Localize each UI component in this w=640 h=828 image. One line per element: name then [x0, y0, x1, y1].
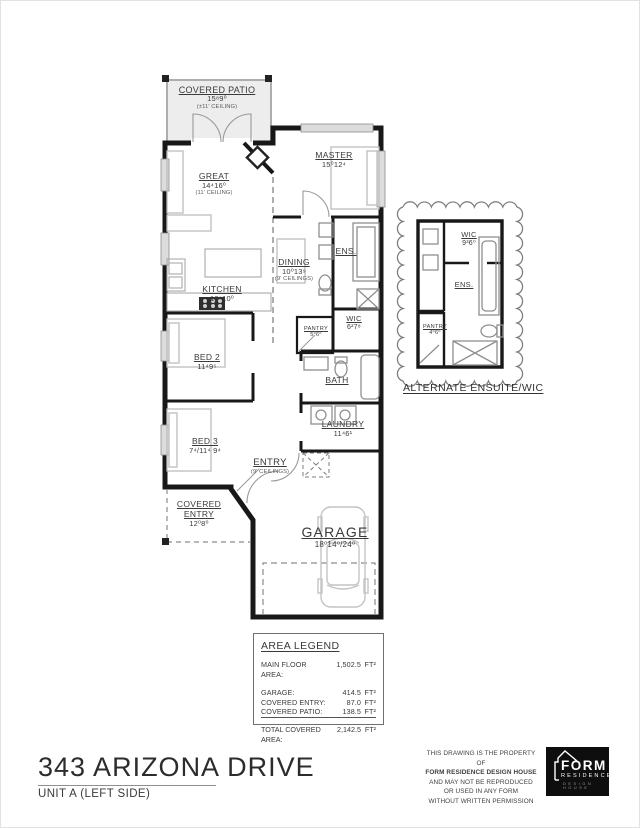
- legend-row-covered-patio: COVERED PATIO: 138.5 FT²: [261, 707, 376, 717]
- room-dims: 18⁰14⁰/24⁰: [301, 540, 368, 549]
- room-name: GARAGE: [301, 524, 368, 540]
- room-name: WIC: [346, 315, 361, 324]
- legend-divider: [261, 717, 376, 718]
- room-dims: 12⁰8⁰: [170, 520, 228, 529]
- room-name: ENS.: [335, 247, 356, 257]
- room-note: (11' CEILING): [195, 190, 232, 197]
- room-label-alt-pantry: PANTRY 4⁰6⁰: [423, 324, 447, 337]
- room-name: ENS.: [455, 281, 474, 290]
- legend-value: 2,142.5: [329, 725, 361, 744]
- sheet-title: 343 ARIZONA DRIVE: [38, 752, 315, 783]
- room-label-wic: WIC 6²7⁸: [346, 315, 361, 332]
- room-label-bed3: BED 3 7⁴/11⁴ 9⁴: [189, 437, 221, 455]
- room-dims: 4⁰6⁰: [423, 330, 447, 336]
- legend-unit: FT²: [361, 660, 376, 679]
- legend-unit: FT²: [361, 725, 376, 744]
- area-legend-title: AREA LEGEND: [261, 640, 376, 652]
- legend-label: COVERED PATIO:: [261, 707, 329, 717]
- sheet-subtitle: UNIT A (LEFT SIDE): [38, 788, 315, 800]
- legend-row-covered-entry: COVERED ENTRY: 87.0 FT²: [261, 698, 376, 708]
- room-label-great: GREAT 14⁴16⁰ (11' CEILING): [195, 172, 232, 197]
- room-dims: 15⁰12⁴: [315, 161, 352, 170]
- copyright-line: THIS DRAWING IS THE PROPERTY OF: [422, 749, 540, 768]
- patio-post: [162, 75, 169, 82]
- legend-label: GARAGE:: [261, 688, 329, 698]
- patio-door-opening: [191, 138, 253, 148]
- room-dims: 11⁴6¹: [322, 430, 365, 439]
- room-dims: 9³6⁰: [461, 240, 476, 248]
- legend-row-main-floor: MAIN FLOOR AREA: 1,502.5 FT²: [261, 660, 376, 679]
- room-name: WIC: [461, 231, 476, 240]
- room-dims: 11⁴9⁵: [194, 363, 220, 372]
- room-note: (9' CEILINGS): [275, 276, 313, 283]
- legend-unit: FT²: [361, 688, 376, 698]
- room-label-entry: ENTRY (9' CEILINGS): [251, 458, 289, 476]
- legend-value: 138.5: [329, 707, 361, 717]
- logo-line2: RESIDENCE: [561, 773, 609, 779]
- legend-row-total: TOTAL COVERED AREA: 2,142.5 FT²: [261, 725, 376, 744]
- legend-unit: FT²: [361, 698, 376, 708]
- legend-unit: FT²: [361, 707, 376, 717]
- room-note: (±11' CEILING): [179, 104, 256, 111]
- patio-post: [265, 75, 272, 82]
- title-underline: [38, 785, 216, 786]
- room-label-pantry: PANTRY 5⁰6⁰: [304, 326, 328, 339]
- logo-line3: DESIGN HOUSE: [563, 782, 609, 790]
- legend-value: 414.5: [329, 688, 361, 698]
- room-name: BATH: [325, 376, 348, 386]
- room-label-bath: BATH: [325, 376, 348, 386]
- room-name: ENTRY: [251, 458, 289, 469]
- copyright-line: WITHOUT WRITTEN PERMISSION: [422, 797, 540, 807]
- copyright-line: AND MAY NOT BE REPRODUCED: [422, 778, 540, 788]
- room-label-laundry: LAUNDRY 11⁴6¹: [322, 420, 365, 438]
- room-dims: 15⁸9⁰: [179, 95, 256, 104]
- room-label-kitchen: KITCHEN 10⁸10⁰: [202, 285, 241, 303]
- room-dims: 6²7⁸: [346, 324, 361, 332]
- copyright-line-company: FORM RESIDENCE DESIGN HOUSE: [422, 768, 540, 778]
- room-dims: 10⁸10⁰: [202, 295, 241, 304]
- room-label-master: MASTER 15⁰12⁴: [315, 151, 352, 169]
- room-dims: 5⁰6⁰: [304, 332, 328, 338]
- title-block: 343 ARIZONA DRIVE UNIT A (LEFT SIDE): [38, 752, 315, 800]
- copyright-line: OR USED IN ANY FORM: [422, 787, 540, 797]
- room-label-dining: DINING 10⁰13⁹ (9' CEILINGS): [275, 258, 313, 283]
- entry-post: [162, 538, 169, 545]
- alternate-detail-caption: ALTERNATE ENSUITE/WIC: [403, 382, 533, 394]
- room-dims: 14⁴16⁰: [195, 182, 232, 191]
- legend-value: 1,502.5: [329, 660, 361, 679]
- room-label-covered-entry: COVERED ENTRY 12⁰8⁰: [170, 500, 228, 528]
- copyright-notice: THIS DRAWING IS THE PROPERTY OF FORM RES…: [422, 749, 540, 807]
- legend-value: 87.0: [329, 698, 361, 708]
- room-name: COVERED ENTRY: [170, 500, 228, 520]
- legend-row-garage: GARAGE: 414.5 FT²: [261, 688, 376, 698]
- room-label-ens: ENS.: [335, 247, 356, 257]
- room-label-covered-patio: COVERED PATIO 15⁸9⁰ (±11' CEILING): [179, 85, 256, 111]
- room-label-garage: GARAGE 18⁰14⁰/24⁰: [301, 524, 368, 549]
- floor-plan-sheet: COVERED PATIO 15⁸9⁰ (±11' CEILING) GREAT…: [0, 0, 640, 828]
- room-label-bed2: BED 2 11⁴9⁵: [194, 353, 220, 371]
- room-dims: 7⁴/11⁴ 9⁴: [189, 447, 221, 456]
- legend-label: TOTAL COVERED AREA:: [261, 725, 329, 744]
- room-label-alt-ens: ENS.: [455, 281, 474, 290]
- legend-label: COVERED ENTRY:: [261, 698, 329, 708]
- room-dims: 10⁰13⁹: [275, 268, 313, 277]
- room-note: (9' CEILINGS): [251, 469, 289, 476]
- area-legend: AREA LEGEND MAIN FLOOR AREA: 1,502.5 FT²…: [253, 633, 384, 725]
- form-residence-logo: FORM RESIDENCE DESIGN HOUSE: [546, 747, 609, 796]
- logo-name: FORM: [561, 758, 607, 773]
- legend-label: MAIN FLOOR AREA:: [261, 660, 329, 679]
- room-label-alt-wic: WIC 9³6⁰: [461, 231, 476, 248]
